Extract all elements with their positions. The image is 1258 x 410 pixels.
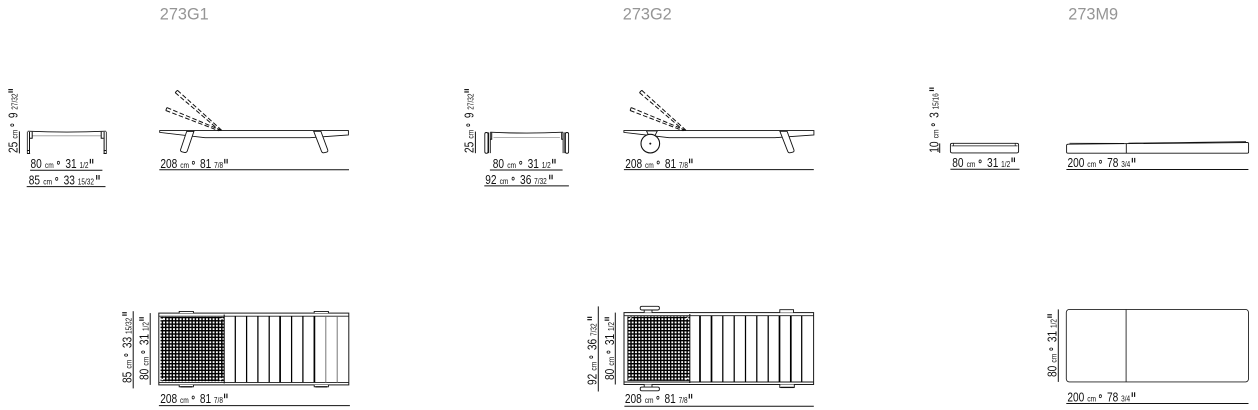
svg-text:27/32: 27/32	[10, 94, 20, 110]
svg-text:cm: cm	[141, 357, 151, 366]
svg-text:1/2: 1/2	[79, 160, 88, 170]
svg-text:25: 25	[462, 142, 476, 153]
svg-text:31: 31	[65, 157, 76, 171]
svg-text:27/32: 27/32	[466, 94, 476, 110]
svg-text:200: 200	[1068, 156, 1085, 170]
svg-text:36: 36	[585, 339, 599, 350]
svg-text:cm: cm	[180, 395, 189, 405]
svg-text:7/32: 7/32	[589, 323, 599, 336]
svg-text:cm: cm	[931, 129, 941, 138]
svg-text:cm: cm	[45, 160, 54, 170]
svg-text:cm: cm	[1087, 394, 1096, 404]
svg-text:cm: cm	[507, 160, 516, 170]
svg-text:80: 80	[31, 157, 43, 171]
svg-text:208: 208	[625, 157, 642, 171]
svg-text:cm: cm	[606, 357, 616, 366]
svg-text:81: 81	[665, 392, 676, 406]
svg-text:81: 81	[200, 157, 211, 171]
svg-text:80: 80	[137, 368, 151, 380]
svg-text:cm: cm	[967, 159, 976, 169]
svg-text:3/4: 3/4	[1121, 159, 1130, 169]
svg-text:cm: cm	[1049, 354, 1059, 363]
svg-text:208: 208	[160, 157, 177, 171]
svg-text:80: 80	[1045, 365, 1059, 377]
svg-text:3/4: 3/4	[1121, 394, 1130, 404]
svg-text:81: 81	[200, 392, 211, 406]
svg-text:200: 200	[1067, 390, 1084, 404]
svg-text:273G2: 273G2	[623, 6, 672, 24]
svg-text:33: 33	[64, 173, 75, 187]
svg-text:1/2: 1/2	[606, 322, 616, 331]
svg-text:cm: cm	[180, 160, 189, 170]
svg-text:92: 92	[585, 374, 599, 385]
svg-text:80: 80	[952, 156, 964, 170]
svg-text:cm: cm	[1087, 159, 1096, 169]
svg-text:15/32: 15/32	[78, 176, 94, 186]
svg-text:cm: cm	[645, 395, 654, 405]
svg-text:9: 9	[462, 112, 476, 118]
svg-text:cm: cm	[466, 130, 476, 139]
svg-text:cm: cm	[43, 176, 52, 186]
svg-text:3: 3	[927, 112, 941, 118]
svg-text:cm: cm	[10, 130, 20, 139]
svg-text:7/32: 7/32	[534, 176, 547, 186]
svg-text:1/2: 1/2	[542, 160, 551, 170]
svg-text:85: 85	[120, 372, 134, 383]
svg-text:36: 36	[520, 173, 531, 187]
svg-text:cm: cm	[500, 176, 509, 186]
svg-text:33: 33	[120, 337, 134, 348]
svg-text:273M9: 273M9	[1068, 6, 1118, 24]
svg-text:9: 9	[6, 112, 20, 118]
svg-text:31: 31	[1045, 331, 1059, 342]
svg-text:15/16: 15/16	[931, 93, 941, 109]
svg-text:15/32: 15/32	[124, 318, 134, 334]
svg-text:31: 31	[987, 156, 998, 170]
svg-text:81: 81	[665, 157, 676, 171]
svg-text:cm: cm	[589, 362, 599, 371]
svg-text:1/2: 1/2	[1049, 319, 1059, 328]
svg-text:7/8: 7/8	[679, 395, 688, 405]
svg-text:cm: cm	[124, 360, 134, 369]
svg-text:78: 78	[1107, 156, 1118, 170]
svg-text:208: 208	[160, 392, 177, 406]
svg-text:25: 25	[6, 142, 20, 153]
svg-text:7/8: 7/8	[214, 395, 223, 405]
svg-text:7/8: 7/8	[214, 160, 223, 170]
svg-text:80: 80	[493, 157, 505, 171]
svg-text:85: 85	[29, 173, 40, 187]
svg-text:1/2: 1/2	[141, 322, 151, 331]
svg-text:31: 31	[603, 334, 617, 345]
svg-text:80: 80	[603, 368, 617, 380]
svg-text:1/2: 1/2	[1001, 159, 1010, 169]
svg-text:92: 92	[485, 173, 496, 187]
svg-text:78: 78	[1107, 390, 1118, 404]
svg-text:10: 10	[927, 141, 941, 153]
svg-text:31: 31	[137, 334, 151, 345]
svg-text:7/8: 7/8	[679, 160, 688, 170]
svg-text:273G1: 273G1	[160, 6, 209, 24]
svg-text:31: 31	[528, 157, 539, 171]
svg-text:cm: cm	[645, 160, 654, 170]
svg-text:208: 208	[625, 392, 642, 406]
